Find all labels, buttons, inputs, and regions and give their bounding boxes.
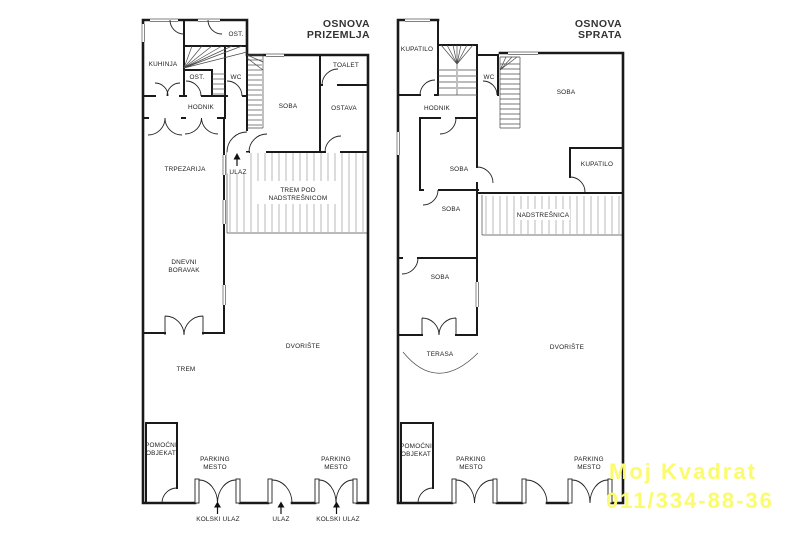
room-label-dvoriste: DVORIŠTE bbox=[286, 341, 320, 350]
room-label-dnevni-2: BORAVAK bbox=[168, 267, 200, 274]
label-parking-upper-1b: MESTO bbox=[459, 464, 483, 471]
room-label-ost-top: OST. bbox=[228, 31, 243, 38]
ground-gates bbox=[195, 479, 357, 503]
upper-floor-plan: KUPATILO WC HODNIK SOBA KUPATILO SOBA SO… bbox=[396, 18, 623, 503]
room-label-pomocni-upper-2: OBJEKAT bbox=[401, 451, 431, 458]
room-label-soba1: SOBA bbox=[450, 166, 469, 173]
room-label-terasa: TERASA bbox=[427, 351, 454, 358]
room-label-kuhinja: KUHINJA bbox=[149, 61, 178, 68]
label-kolski-ulaz-right: KOLSKI ULAZ bbox=[316, 516, 359, 523]
label-parking-1b: MESTO bbox=[203, 464, 227, 471]
upper-inner-walls bbox=[398, 20, 623, 503]
ground-gate-arrows bbox=[214, 502, 340, 515]
upper-outer-walls bbox=[398, 20, 623, 503]
room-label-nadstresnica: NADSTREŠNICA bbox=[517, 210, 570, 219]
ground-plan-title-2: PRIZEMLJA bbox=[307, 29, 370, 41]
room-label-soba3: SOBA bbox=[431, 274, 450, 281]
upper-gates bbox=[452, 479, 612, 503]
room-label-soba-big: SOBA bbox=[557, 89, 576, 96]
label-parking-1a: PARKING bbox=[200, 456, 230, 463]
room-label-hodnik-upper: HODNIK bbox=[424, 105, 451, 112]
ground-floor-plan: KUHINJA OST. OST. WC HODNIK SOBA TOALET … bbox=[141, 18, 370, 523]
label-parking-2a: PARKING bbox=[321, 456, 351, 463]
room-label-trem: TREM bbox=[177, 366, 196, 373]
floor-plan-image: KUHINJA OST. OST. WC HODNIK SOBA TOALET … bbox=[0, 0, 800, 533]
watermark-line1: Moj Kvadrat bbox=[609, 459, 757, 484]
label-parking-upper-2b: MESTO bbox=[577, 464, 601, 471]
room-label-dnevni-1: DNEVNI bbox=[171, 259, 196, 266]
room-label-wc: WC bbox=[230, 74, 241, 81]
upper-plan-title-2: SPRATA bbox=[578, 29, 622, 41]
room-label-dvoriste-upper: DVORIŠTE bbox=[550, 342, 584, 351]
label-parking-upper-1a: PARKING bbox=[456, 456, 486, 463]
room-label-ulaz: ULAZ bbox=[229, 169, 246, 176]
label-parking-upper-2a: PARKING bbox=[574, 456, 604, 463]
room-label-soba2: SOBA bbox=[442, 206, 461, 213]
room-label-trem-pod-2: NADSTREŠNICOM bbox=[269, 193, 328, 202]
room-label-toalet: TOALET bbox=[333, 62, 359, 69]
watermark-line2: 011/334-88-36 bbox=[606, 488, 774, 513]
room-label-wc-upper: WC bbox=[483, 74, 494, 81]
room-label-pomocni-upper-1: POMOĆNI bbox=[400, 441, 432, 450]
room-label-trpezarija: TRPEZARIJA bbox=[164, 166, 206, 173]
room-label-hodnik: HODNIK bbox=[188, 104, 215, 111]
room-label-kupatilo-top: KUPATILO bbox=[401, 46, 433, 53]
label-ulaz-gate: ULAZ bbox=[272, 516, 289, 523]
room-label-trem-pod-1: TREM POD bbox=[280, 187, 316, 194]
room-label-ostava: OSTAVA bbox=[331, 105, 357, 112]
upper-doors bbox=[402, 80, 585, 503]
floor-plan-svg: KUHINJA OST. OST. WC HODNIK SOBA TOALET … bbox=[0, 0, 800, 533]
label-kolski-ulaz-left: KOLSKI ULAZ bbox=[196, 516, 239, 523]
ground-stairs bbox=[184, 46, 263, 128]
room-label-soba: SOBA bbox=[279, 103, 298, 110]
upper-stairs bbox=[438, 45, 520, 128]
room-label-pomocni-2: OBJEKAT bbox=[146, 450, 176, 457]
room-label-kupatilo-right: KUPATILO bbox=[581, 161, 613, 168]
label-parking-2b: MESTO bbox=[324, 464, 348, 471]
room-label-pomocni-1: POMOĆNI bbox=[145, 440, 177, 449]
room-label-ost: OST. bbox=[189, 74, 204, 81]
